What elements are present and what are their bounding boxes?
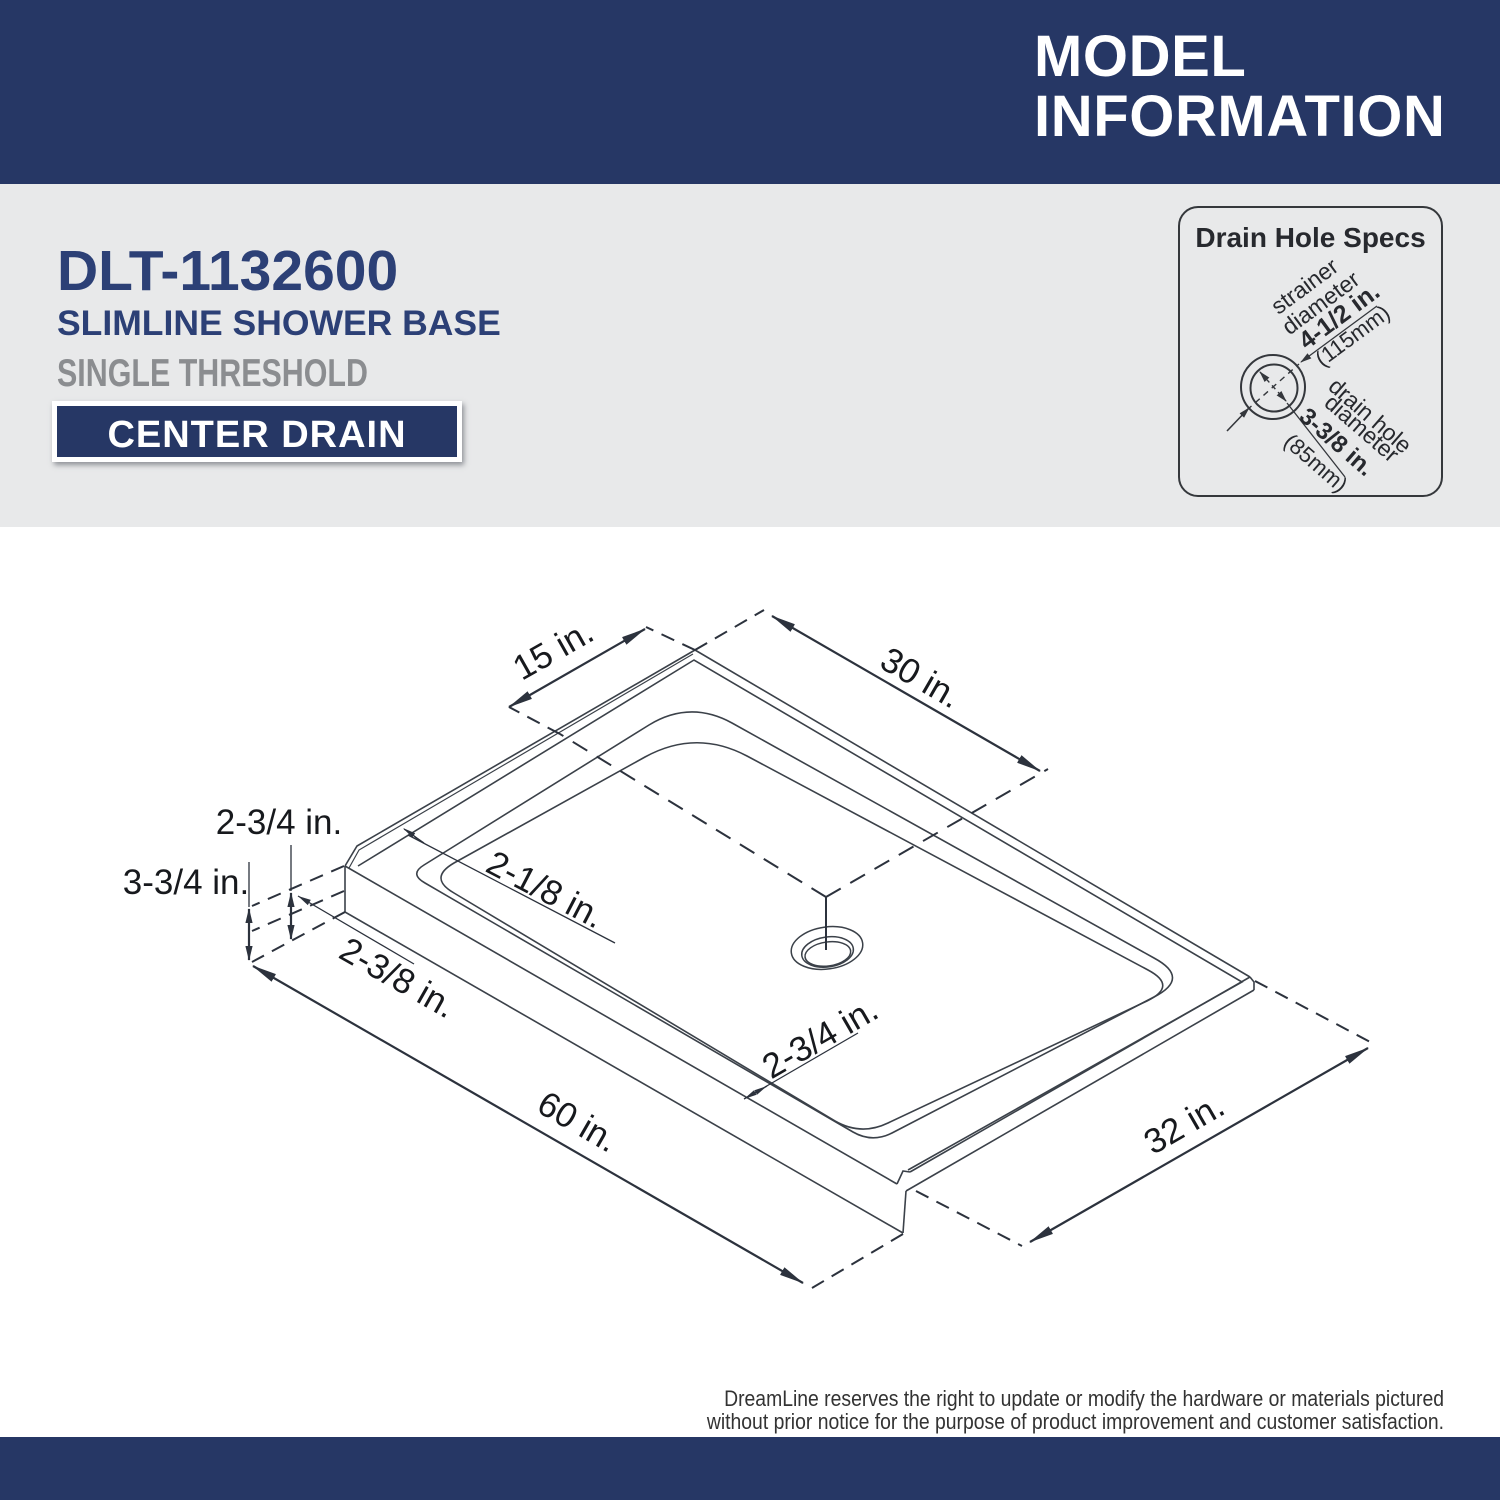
svg-text:30 in.: 30 in. [874, 640, 968, 717]
svg-text:2-3/4 in.: 2-3/4 in. [756, 990, 885, 1087]
svg-text:2-1/8 in.: 2-1/8 in. [480, 843, 610, 936]
svg-text:2-3/4 in.: 2-3/4 in. [216, 803, 342, 842]
svg-text:3-3/4 in.: 3-3/4 in. [123, 863, 249, 902]
svg-text:60 in.: 60 in. [531, 1084, 625, 1161]
svg-text:32 in.: 32 in. [1137, 1086, 1231, 1163]
svg-text:15 in.: 15 in. [506, 612, 600, 688]
svg-text:2-3/8 in.: 2-3/8 in. [333, 930, 462, 1026]
